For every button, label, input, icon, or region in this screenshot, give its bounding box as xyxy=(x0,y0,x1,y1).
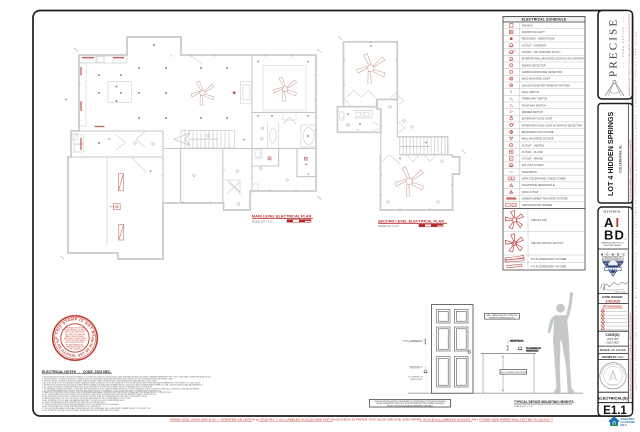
svg-text:FOUR WAY SWITCH: FOUR WAY SWITCH xyxy=(522,103,546,107)
svg-text:REVISION(S):: REVISION(S): xyxy=(603,305,622,309)
svg-text:INTERIOR WALL MOUNTED SCONCE O: INTERIOR WALL MOUNTED SCONCE OR LANTERN xyxy=(522,57,584,61)
svg-text:ELECTRICAL SCHEDULE: ELECTRICAL SCHEDULE xyxy=(522,18,567,22)
svg-text:220 VOLT OUTLET: 220 VOLT OUTLET xyxy=(522,163,545,167)
svg-text:FAN BOX W/ LIGHT: FAN BOX W/ LIGHT xyxy=(522,30,546,34)
svg-text:DIMMER SWITCH: DIMMER SWITCH xyxy=(522,110,543,114)
svg-text:SCALE: 3/4" = 1'-0": SCALE: 3/4" = 1'-0" xyxy=(514,405,533,408)
svg-text:N.C.B.D.C.: N.C.B.D.C. xyxy=(608,269,618,271)
svg-text:GFI: GFI xyxy=(513,50,516,52)
svg-text:—— HOME DESIGN ——: —— HOME DESIGN —— xyxy=(623,15,625,68)
svg-text:ALL COUNTER OUTLETS GFI: ALL COUNTER OUTLETS GFI xyxy=(501,371,526,374)
svg-text:SCALE: 1/4" = 1'-0": SCALE: 1/4" = 1'-0" xyxy=(252,220,273,223)
svg-text:RECESSED - DIRECTIONAL: RECESSED - DIRECTIONAL xyxy=(522,37,556,41)
svg-text:D: D xyxy=(615,228,624,243)
svg-text:GARAGE DOOR OPENER: GARAGE DOOR OPENER xyxy=(522,203,553,207)
svg-text:UNDER CABINET MOUNTED FIXTURE: UNDER CABINET MOUNTED FIXTURE xyxy=(522,197,568,201)
svg-text:SECOND LEVEL ELECTRICAL PLAN: SECOND LEVEL ELECTRICAL PLAN xyxy=(378,220,444,224)
svg-text:TELEPHONE RECEPTACLE: TELEPHONE RECEPTACLE xyxy=(522,183,555,187)
svg-text:DATA / TELEPHONE / CABLE COMBO: DATA / TELEPHONE / CABLE COMBO xyxy=(522,177,567,181)
svg-text:MLS: MLS xyxy=(621,423,627,427)
svg-text:2023 NEC: 2023 NEC xyxy=(605,340,620,344)
svg-text:8' ft FLUORESCENT FIXTURE: 8' ft FLUORESCENT FIXTURE xyxy=(531,257,567,261)
svg-text:OUTLET - GFI (GROUND FAULT): OUTLET - GFI (GROUND FAULT) xyxy=(522,50,561,54)
svg-text:E1.1: E1.1 xyxy=(603,405,627,417)
svg-text:CPBD 2-1517: CPBD 2-1517 xyxy=(614,291,626,293)
svg-text:DEVICE BOX: DEVICE BOX xyxy=(410,379,423,381)
svg-text:WALL MOUNTED LIGHT: WALL MOUNTED LIGHT xyxy=(522,77,551,81)
svg-text:SMOKE DETECTOR: SMOKE DETECTOR xyxy=(522,63,546,67)
svg-text:RECESSED CAN FIXTURE: RECESSED CAN FIXTURE xyxy=(522,130,554,134)
svg-text:TV: TV xyxy=(510,170,514,174)
svg-text:EXTERIOR FLOOD LIGHT W/ MOTION: EXTERIOR FLOOD LIGHT W/ MOTION DETECTOR xyxy=(522,123,582,127)
svg-text:ELECTRICAL(S): ELECTRICAL(S) xyxy=(598,396,629,401)
svg-text:DO NOT SCALE DRAWINGS — CONTRA: DO NOT SCALE DRAWINGS — CONTRACTOR TO VE… xyxy=(629,139,632,200)
svg-text:PAPER SIZE: 24x36 (ARCH D) —: PAPER SIZE: 24x36 (ARCH D) — GREATER OR … xyxy=(170,417,554,421)
svg-text:N · C · B · D · C: N · C · B · D · C xyxy=(601,253,626,257)
svg-text:TO PRECISE HOME DESIGN: TO PRECISE HOME DESIGN xyxy=(65,340,86,342)
svg-text:THESE PLANS ARE PROTECTED UNDE: THESE PLANS ARE PROTECTED UNDER FEDERAL … xyxy=(629,312,632,399)
svg-text:BUILDING DESIGN: BUILDING DESIGN xyxy=(604,245,621,247)
svg-text:B: B xyxy=(604,228,613,243)
svg-text:THIS DRAWING IS THE PROPERTY O: THIS DRAWING IS THE PROPERTY OF PRECISE … xyxy=(628,13,631,96)
svg-text:SCALE: AS NOTED: SCALE: AS NOTED xyxy=(600,348,626,352)
svg-text:SCALE: 1/4" = 1'-0": SCALE: 1/4" = 1'-0" xyxy=(378,225,399,228)
svg-text:LOT 4 HIDDEN SPRINGS: LOT 4 HIDDEN SPRINGS xyxy=(606,112,615,196)
svg-text:2/6/2025: 2/6/2025 xyxy=(605,299,620,303)
svg-text:OUTLET - RANGE: OUTLET - RANGE xyxy=(522,157,544,161)
svg-text:WALL SWITCH: WALL SWITCH xyxy=(522,90,540,94)
svg-text:PRIOR TO ROUGH-IN. ADA REQUIR: PRIOR TO ROUGH-IN. ADA REQUIREMENTS MAY … xyxy=(387,404,434,407)
svg-text:CARBON MONOXIDE DETECTOR: CARBON MONOXIDE DETECTOR xyxy=(522,70,562,74)
svg-text:TELEVISION: TELEVISION xyxy=(522,170,537,174)
svg-text:CEILING MOUNTED PENDANT FIXTUR: CEILING MOUNTED PENDANT FIXTURE xyxy=(522,83,571,87)
svg-text:DATA OUTLET: DATA OUTLET xyxy=(522,190,539,194)
svg-text:GDO: GDO xyxy=(512,205,517,207)
svg-text:PRECISE: PRECISE xyxy=(608,18,620,77)
svg-text:DRAWN BY: GKH: DRAWN BY: GKH xyxy=(602,355,623,359)
svg-text:THREE WAY SWITCH: THREE WAY SWITCH xyxy=(522,97,548,101)
svg-text:LIGHT COMBINATION: LIGHT COMBINATION xyxy=(402,340,423,343)
svg-text:COLUMBIANA, AL.: COLUMBIANA, AL. xyxy=(619,144,623,173)
svg-text:DATE ISSUED:: DATE ISSUED: xyxy=(602,295,623,299)
svg-text:EXTERIOR FLOOD LIGHT: EXTERIOR FLOOD LIGHT xyxy=(522,117,553,121)
svg-text:SHOWN FOR REFERENCE ONLY: SHOWN FOR REFERENCE ONLY xyxy=(489,317,516,319)
svg-text:OUTLET - FLOOR: OUTLET - FLOOR xyxy=(522,150,543,154)
svg-text:4' ft FLUORESCENT FIXTURE: 4' ft FLUORESCENT FIXTURE xyxy=(531,264,567,268)
svg-text:ELECTRICAL NOTES - CODE: 2: ELECTRICAL NOTES - CODE: 2023 NEC. xyxy=(42,370,111,374)
svg-text:CEILING FAN: CEILING FAN xyxy=(531,218,547,222)
svg-text:FAN BOX: FAN BOX xyxy=(522,23,533,27)
svg-text:TYPICAL DEVICE MOUNTING HEIGHT: TYPICAL DEVICE MOUNTING HEIGHTS xyxy=(514,400,574,404)
svg-text:CEILING FAN W/ LIGHT KIT: CEILING FAN W/ LIGHT KIT xyxy=(531,241,564,245)
svg-text:OUTLET - INTERIOR: OUTLET - INTERIOR xyxy=(522,43,547,47)
svg-text:WALL MOUNTED SCONCE: WALL MOUNTED SCONCE xyxy=(522,137,554,141)
svg-text:DEVICE BOX: DEVICE BOX xyxy=(526,351,539,353)
svg-text:MEMBER:: MEMBER: xyxy=(603,209,621,213)
svg-text:OUTLET - HEATED: OUTLET - HEATED xyxy=(522,143,545,147)
svg-text:MAIN LEVEL ELECTRICAL PLAN: MAIN LEVEL ELECTRICAL PLAN xyxy=(252,215,312,219)
svg-text:RECEPTACLE: RECEPTACLE xyxy=(510,340,524,343)
